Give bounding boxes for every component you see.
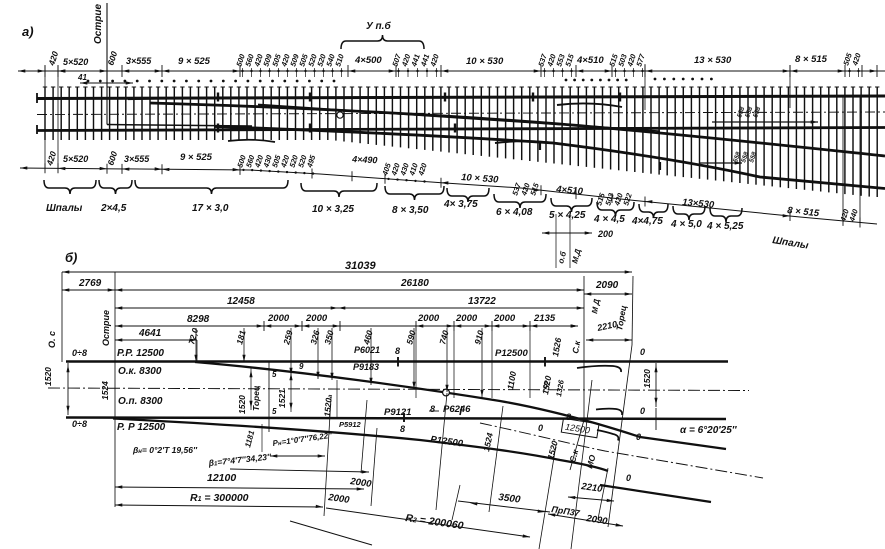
svg-text:8 × 515: 8 × 515 xyxy=(795,54,828,65)
svg-text:О.к. 8300: О.к. 8300 xyxy=(118,366,162,377)
svg-text:а): а) xyxy=(22,24,34,39)
svg-text:Острие: Острие xyxy=(93,4,104,44)
svg-text:5 × 4,25: 5 × 4,25 xyxy=(549,210,586,221)
svg-text:Острие: Острие xyxy=(101,310,111,346)
svg-text:Р12500: Р12500 xyxy=(495,348,528,359)
svg-text:4641: 4641 xyxy=(138,328,162,339)
svg-text:α = 6°20′25″: α = 6°20′25″ xyxy=(680,425,738,436)
svg-text:О.п. 8300: О.п. 8300 xyxy=(118,396,163,407)
svg-text:9 × 525: 9 × 525 xyxy=(180,152,213,163)
svg-text:2000: 2000 xyxy=(493,313,516,324)
svg-text:4×500: 4×500 xyxy=(354,55,382,66)
svg-text:Р6021: Р6021 xyxy=(354,345,380,355)
svg-text:Р9183: Р9183 xyxy=(353,362,379,372)
svg-text:8: 8 xyxy=(543,380,548,390)
svg-text:0: 0 xyxy=(640,406,645,416)
svg-text:2090: 2090 xyxy=(595,280,619,291)
svg-text:12100: 12100 xyxy=(207,472,236,484)
svg-text:5: 5 xyxy=(272,407,277,416)
svg-text:13722: 13722 xyxy=(468,296,496,307)
svg-text:Р5912: Р5912 xyxy=(339,420,362,429)
svg-text:5×520: 5×520 xyxy=(63,57,88,67)
svg-text:б): б) xyxy=(65,250,77,265)
svg-text:Шпалы: Шпалы xyxy=(46,203,83,214)
svg-text:2000: 2000 xyxy=(455,313,478,324)
svg-text:Торец: Торец xyxy=(251,385,261,411)
svg-text:8298: 8298 xyxy=(187,314,210,325)
svg-text:3×555: 3×555 xyxy=(124,154,150,164)
svg-text:200: 200 xyxy=(597,229,613,239)
svg-text:31039: 31039 xyxy=(345,260,376,272)
svg-text:8: 8 xyxy=(430,404,435,414)
svg-text:10 × 530: 10 × 530 xyxy=(466,56,504,67)
svg-text:Р. Р 12500: Р. Р 12500 xyxy=(117,422,166,433)
svg-text:10 × 3,25: 10 × 3,25 xyxy=(312,204,354,215)
svg-text:1520: 1520 xyxy=(237,395,247,414)
svg-text:3×555: 3×555 xyxy=(126,56,152,66)
svg-text:4 × 5,0: 4 × 5,0 xyxy=(670,219,702,230)
svg-text:2769: 2769 xyxy=(78,278,102,289)
svg-text:4×4,75: 4×4,75 xyxy=(631,216,663,227)
svg-text:5: 5 xyxy=(272,370,277,379)
svg-text:1521: 1521 xyxy=(277,389,287,408)
svg-text:4×490: 4×490 xyxy=(351,154,378,165)
svg-text:4×510: 4×510 xyxy=(576,55,604,66)
svg-text:8: 8 xyxy=(566,412,571,422)
svg-text:2000: 2000 xyxy=(305,313,328,324)
svg-text:0÷8: 0÷8 xyxy=(72,419,87,429)
svg-text:1524: 1524 xyxy=(100,381,110,400)
svg-text:13 × 530: 13 × 530 xyxy=(694,55,732,66)
svg-text:5×520: 5×520 xyxy=(63,154,88,164)
svg-text:0÷8: 0÷8 xyxy=(72,348,87,358)
svg-text:1520: 1520 xyxy=(43,367,53,386)
svg-text:8 × 3,50: 8 × 3,50 xyxy=(392,205,429,216)
svg-text:17 × 3,0: 17 × 3,0 xyxy=(192,203,229,214)
svg-text:0: 0 xyxy=(626,473,631,483)
svg-text:6 × 4,08: 6 × 4,08 xyxy=(496,207,533,218)
svg-text:8: 8 xyxy=(400,424,405,434)
svg-text:О. с: О. с xyxy=(47,331,57,348)
svg-text:8: 8 xyxy=(395,346,400,356)
svg-text:4× 3,75: 4× 3,75 xyxy=(443,199,478,210)
svg-text:9: 9 xyxy=(299,362,304,371)
svg-text:2×4,5: 2×4,5 xyxy=(100,203,127,214)
svg-text:12458: 12458 xyxy=(227,296,255,307)
svg-text:0: 0 xyxy=(636,432,641,442)
svg-text:1520: 1520 xyxy=(642,369,652,388)
svg-text:9 × 525: 9 × 525 xyxy=(178,56,211,67)
svg-text:2135: 2135 xyxy=(533,313,556,324)
svg-text:2000: 2000 xyxy=(417,313,440,324)
svg-text:4 × 5,25: 4 × 5,25 xyxy=(706,221,744,232)
svg-text:У п.б: У п.б xyxy=(366,20,391,32)
svg-text:Р.Р. 12500: Р.Р. 12500 xyxy=(117,348,164,359)
svg-text:Р9121: Р9121 xyxy=(384,407,411,418)
svg-text:Р6246: Р6246 xyxy=(443,404,471,415)
svg-text:26180: 26180 xyxy=(400,278,429,289)
svg-text:4 × 4,5: 4 × 4,5 xyxy=(593,214,625,225)
svg-text:41: 41 xyxy=(77,73,87,82)
svg-text:0: 0 xyxy=(640,347,645,357)
svg-text:2000: 2000 xyxy=(267,313,290,324)
svg-text:0: 0 xyxy=(538,423,543,433)
svg-text:βн= 0°2′Т 19,56″: βн= 0°2′Т 19,56″ xyxy=(132,445,198,455)
